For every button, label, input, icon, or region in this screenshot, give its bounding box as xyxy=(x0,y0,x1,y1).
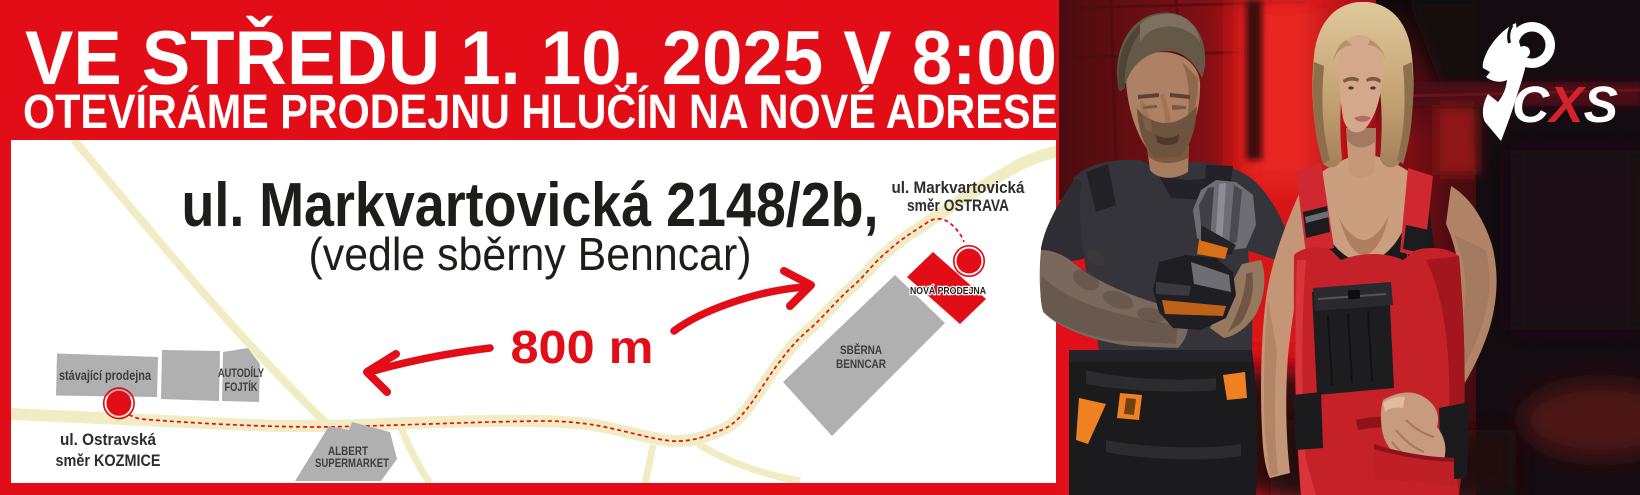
svg-text:BENNCAR: BENNCAR xyxy=(836,357,886,371)
svg-text:stávající prodejna: stávající prodejna xyxy=(59,368,151,383)
svg-text:(vedle sběrny Benncar): (vedle sběrny Benncar) xyxy=(309,228,752,280)
svg-text:směr OSTRAVA: směr OSTRAVA xyxy=(907,197,1009,215)
svg-text:OTEVÍRÁME PRODEJNU HLUČÍN NA N: OTEVÍRÁME PRODEJNU HLUČÍN NA NOVÉ ADRESE xyxy=(23,84,1058,139)
svg-text:800 m: 800 m xyxy=(511,321,654,373)
svg-text:FOJTÍK: FOJTÍK xyxy=(225,379,258,394)
svg-text:směr KOZMICE: směr KOZMICE xyxy=(56,452,161,470)
svg-text:CXS: CXS xyxy=(1512,76,1618,133)
svg-text:SUPERMARKET: SUPERMARKET xyxy=(315,456,390,470)
svg-text:SBĚRNA: SBĚRNA xyxy=(840,342,882,357)
svg-text:ul. Ostravská: ul. Ostravská xyxy=(60,431,157,449)
svg-text:ul. Markvartovická: ul. Markvartovická xyxy=(892,179,1026,197)
svg-text:AUTODÍLY: AUTODÍLY xyxy=(218,365,264,380)
svg-text:NOVÁ PRODEJNA: NOVÁ PRODEJNA xyxy=(910,284,986,297)
